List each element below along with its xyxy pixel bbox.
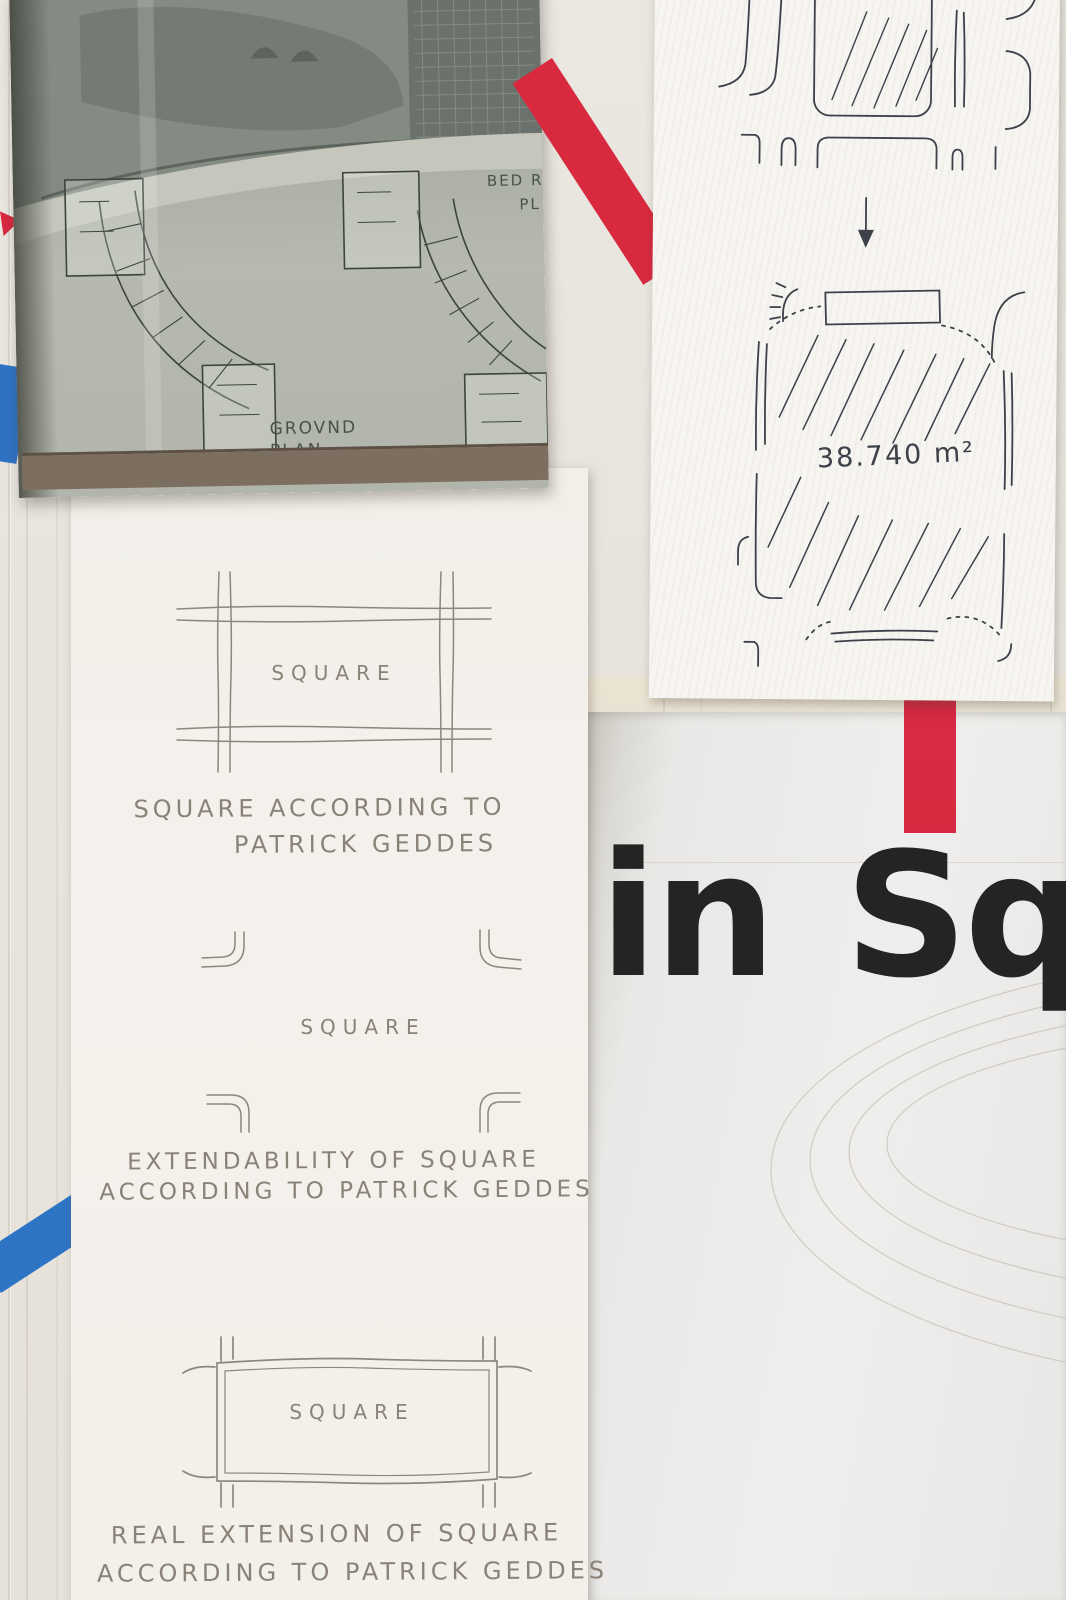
bedroom-plan-label-line1: BED ROO bbox=[487, 170, 549, 190]
diagram3-caption-line1: REAL EXTENSION OF SQUARE bbox=[78, 1518, 595, 1550]
bedroom-plan-label-line2: PL bbox=[519, 195, 541, 213]
upper-area-label-partial: 25.910 m² bbox=[802, 0, 945, 1]
diagram3-caption-line2: ACCORDING TO PATRICK GEDDES bbox=[94, 1556, 611, 1588]
upper-plaza-sketch bbox=[718, 0, 1037, 170]
geddes-diagrams: SQUARE SQUARE SQUARE bbox=[71, 468, 588, 1600]
diagram1-caption-line1: SQUARE ACCORDING TO bbox=[61, 792, 578, 824]
plaza-area-label: 38.740 m² bbox=[816, 437, 975, 475]
wall-seam-highlight bbox=[10, 0, 11, 1600]
poster-headline: in Squa bbox=[599, 830, 1066, 1002]
plaza-sketch-sheet: 25.910 m² 38.740 m² bbox=[649, 0, 1060, 702]
diagram2-square-label: SQUARE bbox=[300, 1015, 425, 1039]
diagram3-square-label: SQUARE bbox=[289, 1400, 414, 1424]
lower-plaza-sketch bbox=[737, 283, 1024, 668]
ground-plan-label-line1: GROVND bbox=[269, 418, 357, 440]
wall-seam bbox=[56, 480, 58, 1600]
diagram2-caption-line1: EXTENDABILITY OF SQUARE bbox=[75, 1146, 592, 1176]
diagram2-caption-line2: ACCORDING TO PATRICK GEDDES bbox=[88, 1176, 605, 1206]
geddes-diagram-sheet: SQUARE SQUARE SQUARE SQUARE ACCORDING TO… bbox=[71, 468, 588, 1600]
exhibition-wall-photo: in Squa bbox=[0, 0, 1066, 1600]
in-square-poster: in Squa bbox=[585, 712, 1066, 1600]
red-tape-vertical bbox=[904, 687, 956, 833]
diagram1-square-label: SQUARE bbox=[271, 661, 396, 685]
plaza-hatching bbox=[768, 335, 990, 611]
wall-seam bbox=[26, 470, 28, 1600]
diagram1-caption-line2: PATRICK GEDDES bbox=[107, 828, 624, 860]
antique-plan-book: GROVND PLAN BED ROO PL bbox=[9, 0, 549, 498]
down-arrow-icon bbox=[858, 198, 874, 248]
